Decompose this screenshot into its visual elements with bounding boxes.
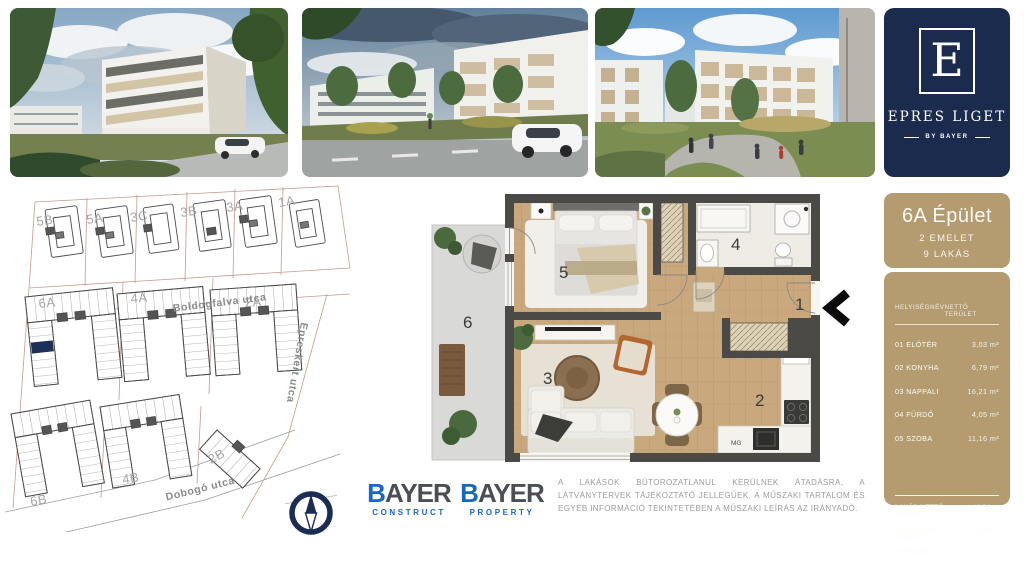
summary-area: 41,24 m² — [972, 504, 999, 518]
room-name: 02 KONYHA — [895, 363, 939, 372]
svg-text:6A: 6A — [38, 294, 56, 311]
site-plan: 5B 5A 3C 3B 3A 1A 6A 4A 2A — [5, 182, 355, 532]
bayer-property-division: PROPERTY — [456, 508, 548, 517]
summary-name: 06 ERKÉLY — [895, 549, 932, 556]
area-table-header: HELYISÉGNÉV NETTÓ TERÜLET — [895, 272, 999, 325]
table-row: 04 FÜRDŐ4,05 m² — [895, 410, 999, 419]
room-area: 11,16 m² — [968, 434, 999, 443]
render-photo-1-art — [10, 8, 288, 177]
room-number-3: 3 — [543, 369, 552, 388]
table-row: 03 NAPPALI16,21 m² — [895, 387, 999, 396]
table-row: 01 ELŐTÉR3,03 m² — [895, 340, 999, 349]
previous-arrow-icon[interactable] — [820, 289, 850, 327]
table-row: 05 SZOBA11,16 m² — [895, 434, 999, 443]
building-floors: 2 EMELET — [884, 233, 1010, 244]
room-area: 4,05 m² — [972, 410, 999, 419]
highlighted-unit — [31, 340, 54, 353]
svg-text:1A: 1A — [277, 193, 296, 210]
summary-area: 10,01 m² — [971, 549, 999, 556]
brand-subtitle: BY BAYER — [925, 134, 968, 140]
subtitle-line-right — [975, 137, 990, 138]
svg-text:5A: 5A — [85, 210, 104, 227]
compass-icon — [285, 486, 337, 538]
brand-title: EPRES LIGET — [888, 109, 1006, 125]
summary-divider — [895, 495, 999, 496]
room-name: 03 NAPPALI — [895, 387, 939, 396]
bayer-construct-division: CONSTRUCT — [363, 508, 455, 517]
summary-row: LAKÁS NETTÓ TERÜLET41,24 m² — [895, 504, 999, 518]
svg-text:4A: 4A — [130, 290, 148, 306]
brand-letter: E — [930, 37, 964, 83]
bayer-construct-wordmark: BAYER — [363, 480, 455, 506]
toilet — [775, 258, 792, 266]
svg-text:3B: 3B — [179, 203, 198, 220]
summary-area: 44,48 m² — [973, 527, 999, 541]
bayer-construct-logo: BAYER CONSTRUCT — [363, 480, 455, 517]
building-title: 6A Épület — [884, 205, 1010, 228]
room-area: 16,21 m² — [967, 387, 999, 396]
room-number-2: 2 — [755, 391, 764, 410]
bayer-property-logo: BAYER PROPERTY — [456, 480, 548, 517]
svg-text:3C: 3C — [129, 208, 149, 225]
col-net-area: NETTÓ TERÜLET — [944, 304, 999, 318]
room-number-1: 1 — [795, 295, 804, 314]
room-name: 04 FÜRDŐ — [895, 410, 934, 419]
lounger — [439, 344, 465, 396]
room-name: 01 ELŐTÉR — [895, 340, 937, 349]
col-room-name: HELYISÉGNÉV — [895, 304, 944, 318]
brand-logo-card: E EPRES LIGET BY BAYER — [884, 8, 1010, 177]
building-units: 9 LAKÁS — [884, 249, 1010, 260]
brand-subtitle-row: BY BAYER — [904, 134, 989, 140]
room-area: 6,79 m² — [972, 363, 999, 372]
room-number-4: 4 — [731, 235, 740, 254]
svg-text:6B: 6B — [29, 491, 48, 509]
subtitle-line-left — [904, 137, 919, 138]
bedroom-furniture — [525, 202, 653, 308]
render-photo-building-corner — [10, 8, 288, 177]
brand-letter-box: E — [919, 28, 975, 94]
summary-row: ÉRTÉKESÍTETT TERÜLET44,48 m² — [895, 527, 999, 541]
render-photo-3-art — [595, 8, 875, 177]
svg-text:4B: 4B — [121, 470, 140, 487]
appliance-label: MG — [731, 440, 741, 447]
room-number-6: 6 — [463, 313, 472, 332]
disclaimer-text: A LAKÁSOK BÚTOROZATLANUL KERÜLNEK ÁTADÁS… — [558, 477, 865, 515]
street-dobogo: Dobogó utca — [164, 475, 236, 504]
render-photo-courtyard — [595, 8, 875, 177]
render-photo-2-art — [302, 8, 588, 177]
area-table-panel: HELYISÉGNÉV NETTÓ TERÜLET 01 ELŐTÉR3,03 … — [884, 272, 1010, 505]
svg-text:5B: 5B — [35, 212, 54, 229]
render-photo-street-view — [302, 8, 588, 177]
room-name: 05 SZOBA — [895, 434, 933, 443]
room-number-5: 5 — [559, 263, 568, 282]
bayer-property-wordmark: BAYER — [456, 480, 548, 506]
room-area: 3,03 m² — [972, 340, 999, 349]
summary-name: ÉRTÉKESÍTETT TERÜLET — [895, 527, 973, 541]
summary-name: LAKÁS NETTÓ TERÜLET — [895, 504, 972, 518]
building-header-panel: 6A Épület 2 EMELET 9 LAKÁS — [884, 193, 1010, 268]
svg-text:3A: 3A — [225, 198, 244, 215]
balcony-room — [432, 225, 507, 460]
summary-row: 06 ERKÉLY10,01 m² — [895, 549, 999, 556]
table-row: 02 KONYHA6,79 m² — [895, 363, 999, 372]
floor-plan: 1 2 3 4 5 6 MG — [425, 186, 845, 476]
